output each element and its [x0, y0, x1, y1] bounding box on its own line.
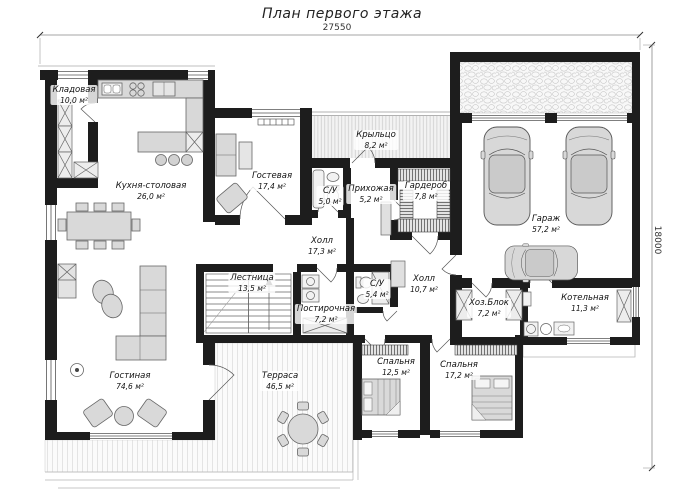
door-wardrobe-hall — [412, 236, 438, 254]
boiler-tank-icon — [541, 324, 552, 335]
sink-icon — [327, 173, 339, 182]
closet — [74, 162, 98, 178]
window — [632, 287, 640, 317]
chair — [94, 203, 106, 211]
floor-plan: План первого этажа 27550 18000 Кладовая1… — [0, 0, 698, 502]
room-label-15: Гостиная74,6 м² — [108, 371, 153, 391]
window — [45, 205, 57, 240]
door-utility — [472, 283, 492, 297]
l-sofa — [116, 336, 166, 360]
entry-cabinet — [381, 202, 391, 235]
window — [58, 70, 88, 80]
room-label-0: Кладовая10,0 м² — [50, 85, 97, 105]
chair — [112, 241, 124, 249]
washer-icon — [302, 289, 319, 302]
radiator-icon — [258, 119, 294, 125]
dimension-width-label: 27550 — [320, 23, 355, 33]
wardrobe-shelving — [398, 219, 450, 232]
chair — [94, 241, 106, 249]
room-label-3: Крыльцо8,2 м² — [354, 130, 398, 150]
room-label-9: Лестница13,5 м² — [228, 273, 275, 293]
chair — [76, 203, 88, 211]
chair — [76, 241, 88, 249]
door-wc2 — [383, 311, 397, 321]
garage-door — [472, 114, 545, 122]
room-label-8: Гараж57,2 м² — [530, 214, 562, 234]
room-label-17: Спальня12,5 м² — [375, 357, 417, 377]
armchair — [82, 398, 113, 428]
door-garage-hall — [442, 255, 456, 275]
tv-unit — [58, 264, 76, 298]
round-table — [288, 414, 318, 444]
bar-stools — [156, 155, 193, 166]
room-label-6: Гардероб7,8 м² — [403, 181, 449, 201]
dimension-line-right — [643, 42, 655, 471]
wardrobe-shelving — [455, 345, 517, 355]
wall-boiler-icon — [523, 292, 531, 306]
rear-patio-edge — [523, 345, 635, 357]
kitchen-island — [138, 132, 186, 152]
floor-plan-drawing — [0, 0, 698, 502]
porch-roof-edge — [312, 112, 450, 116]
chair — [112, 203, 124, 211]
chair — [58, 219, 66, 231]
washer-icon — [302, 275, 319, 288]
cabinet — [239, 142, 252, 169]
room-label-11: С/У5,4 м² — [364, 279, 391, 299]
bed — [362, 379, 400, 415]
guest-room-furniture — [216, 134, 252, 214]
window — [90, 432, 172, 440]
room-label-1: Кухня-столовая26,0 м² — [114, 181, 189, 201]
chair — [132, 219, 140, 231]
door-bedroom2 — [432, 339, 450, 352]
car-icon — [481, 127, 533, 225]
living-room-furniture — [58, 264, 168, 428]
page-title: План первого этажа — [262, 6, 422, 22]
room-label-2: Гостевая17,4 м² — [250, 171, 294, 191]
dimension-height-label: 18000 — [652, 226, 662, 255]
coffee-table — [115, 407, 134, 426]
wardrobe-shelving — [398, 169, 450, 181]
room-label-10: Постирочная7,2 м² — [295, 304, 357, 324]
room-label-16: Терраса46,5 м² — [260, 371, 300, 391]
window — [440, 430, 480, 438]
dining-set — [58, 203, 140, 249]
garage-cars — [481, 127, 615, 282]
closet — [617, 290, 631, 322]
radiators — [258, 119, 294, 125]
washer-icon — [524, 322, 538, 336]
kitchen-furniture — [98, 80, 203, 166]
gravel-driveway-area — [458, 62, 632, 113]
window — [252, 108, 300, 118]
car-icon — [563, 127, 615, 225]
counter-end — [186, 132, 203, 152]
room-label-14: Котельная11,3 м² — [559, 293, 611, 313]
window — [567, 337, 610, 345]
door-laundry — [317, 268, 337, 282]
dining-table — [67, 212, 131, 240]
door-guest-room — [240, 187, 285, 219]
armchair — [216, 182, 249, 214]
garage-door — [557, 114, 627, 122]
bed — [472, 376, 512, 420]
window — [45, 360, 57, 400]
door-pantry — [81, 103, 95, 122]
car-icon — [505, 244, 578, 282]
window — [188, 70, 208, 80]
bedroom-furniture — [362, 376, 512, 420]
window — [372, 430, 398, 438]
closet — [58, 152, 72, 178]
hall-cabinet — [391, 261, 405, 287]
room-label-7: Холл17,3 м² — [306, 236, 338, 256]
room-label-12: Холл10,7 м² — [408, 274, 440, 294]
closet — [58, 126, 72, 152]
room-label-13: Хоз.Блок7,2 м² — [467, 298, 511, 318]
wardrobe-shelving — [362, 345, 408, 355]
l-sofa — [140, 266, 166, 336]
room-label-4: С/У5,0 м² — [317, 186, 344, 206]
room-label-18: Спальня17,2 м² — [438, 360, 480, 380]
kitchen-counter — [186, 98, 203, 132]
room-label-5: Прихожая5,2 м² — [346, 184, 396, 204]
armchair — [136, 398, 167, 428]
